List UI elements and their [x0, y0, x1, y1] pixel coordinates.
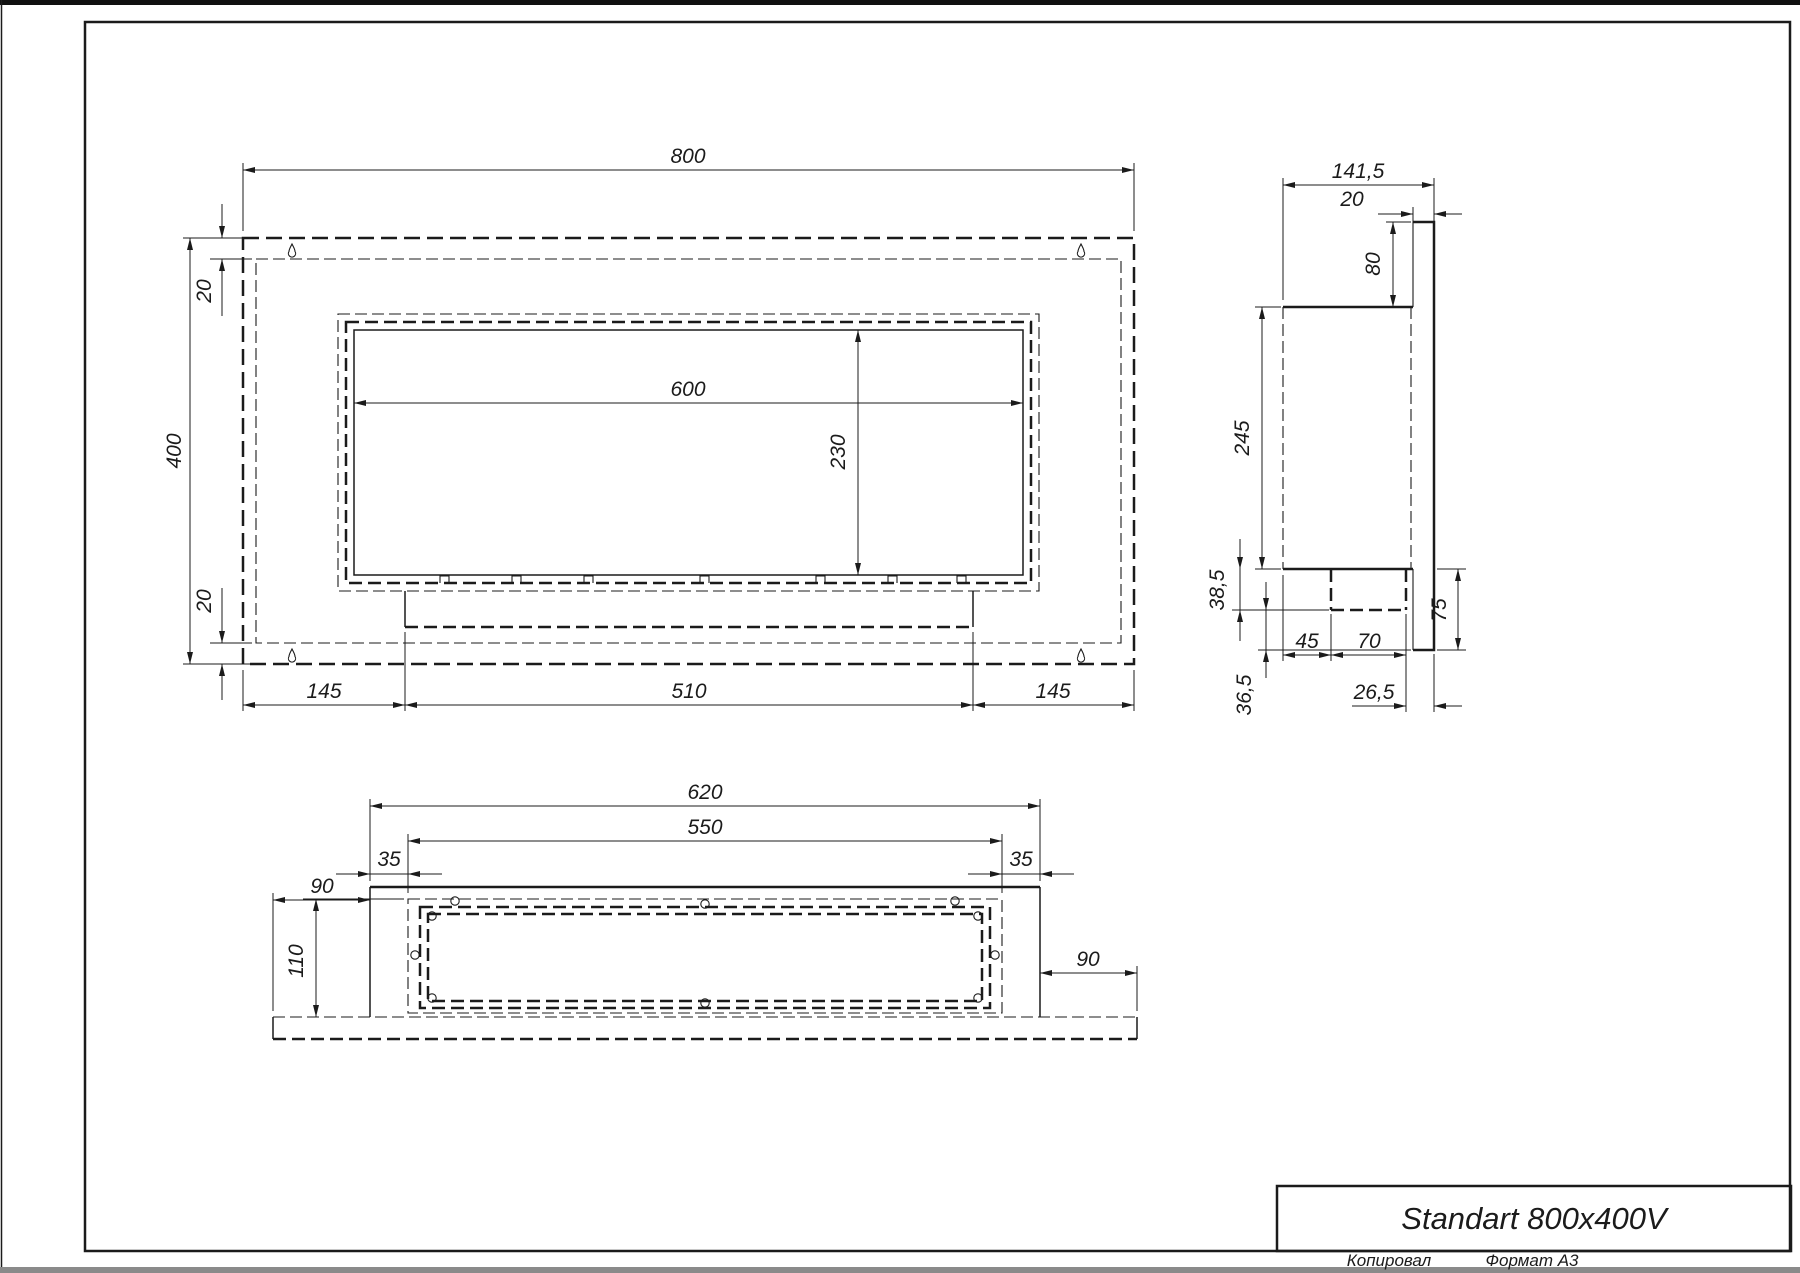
page-top-edge: [0, 0, 1800, 5]
bottom-opening-frame-mid: [420, 907, 990, 1008]
dim-side-body-height: 245: [1231, 420, 1254, 456]
keyhole-icon: [288, 649, 295, 662]
dim-front-bottom-inset: 20: [193, 589, 216, 614]
dim-bottom-depth: 110: [285, 944, 308, 978]
keyhole-icon: [288, 244, 295, 257]
drawing-title: Standart 800x400V: [1401, 1201, 1670, 1236]
dim-front-bottom-right: 145: [1035, 680, 1070, 703]
drawing-sheet: 800 400 20 20 600 230 145 510 145 141,5 …: [0, 0, 1800, 1273]
front-opening-frame-outer: [338, 314, 1039, 591]
bottom-opening-frame-inner: [428, 914, 982, 1001]
dim-front-opening-height: 230: [827, 434, 850, 470]
dim-bottom-body-width: 620: [687, 781, 722, 804]
keyhole-icon: [1077, 649, 1084, 662]
side-wall-plate: [1413, 222, 1434, 650]
front-view-dim-lines: 800 400 20 20 600 230 145 510 145: [163, 145, 1134, 711]
dim-side-bottom-gap: 36,5: [1233, 674, 1256, 715]
dim-front-opening-width: 600: [670, 378, 705, 401]
dim-side-tray-width: 70: [1357, 630, 1381, 653]
dim-side-tray-back-gap: 26,5: [1353, 681, 1395, 704]
keyhole-icon: [1077, 244, 1084, 257]
bottom-view: 620 550 35 35 90 90 110: [273, 781, 1137, 1039]
dim-bottom-margin-right: 35: [1009, 848, 1033, 871]
side-view-outline: [1283, 222, 1434, 650]
dim-side-tray-front-gap: 45: [1295, 630, 1319, 653]
side-arrowheads: [1237, 182, 1461, 709]
format-label: Формат А3: [1485, 1251, 1579, 1270]
title-block: Standart 800x400V Копировал Формат А3: [1277, 1186, 1791, 1270]
sheet-frame: [0, 0, 1800, 1273]
copied-label: Копировал: [1347, 1251, 1432, 1270]
bottom-view-outline: [273, 887, 1137, 1039]
dim-side-overall-depth: 141,5: [1332, 160, 1385, 183]
dim-front-bottom-left: 145: [306, 680, 341, 703]
dim-side-plate-thickness: 20: [1339, 188, 1364, 211]
front-view: 800 400 20 20 600 230 145 510 145: [163, 145, 1134, 711]
dim-front-bottom-center: 510: [671, 680, 706, 703]
front-tray-sides: [405, 591, 973, 627]
side-view-dim-lines: 141,5 20 80 245 38,5 36,5 45 70 26,5 75: [1206, 160, 1466, 715]
dim-side-top-offset: 80: [1362, 252, 1385, 276]
dim-bottom-flange-right: 90: [1076, 948, 1100, 971]
side-body-top-bottom: [1283, 307, 1413, 569]
front-inner-hidden-rect: [256, 259, 1121, 643]
dim-side-tray-height: 38,5: [1206, 569, 1229, 610]
front-view-outline: [243, 238, 1134, 664]
front-opening-frame-mid: [346, 322, 1031, 583]
dim-side-plate-bottom-drop: 75: [1428, 598, 1451, 622]
dim-front-overall-height: 400: [163, 433, 186, 468]
dim-bottom-flange-left: 90: [310, 875, 334, 898]
side-dimension-lines: [1232, 178, 1466, 712]
side-view: 141,5 20 80 245 38,5 36,5 45 70 26,5 75: [1206, 160, 1466, 715]
dim-bottom-opening-width: 550: [687, 816, 722, 839]
dim-front-overall-width: 800: [670, 145, 705, 168]
dim-front-top-inset: 20: [193, 279, 216, 304]
dim-bottom-margin-left: 35: [377, 848, 401, 871]
front-dimension-lines: [183, 163, 1134, 711]
drawing-border: [85, 22, 1790, 1251]
side-tray-hidden: [1331, 569, 1406, 610]
front-outer-panel: [243, 238, 1134, 664]
bottom-opening-frame-outer: [408, 899, 1002, 1013]
drawing-canvas: 800 400 20 20 600 230 145 510 145 141,5 …: [0, 0, 1800, 1273]
front-opening: [354, 330, 1023, 575]
side-body-hidden-edges: [1283, 307, 1411, 569]
bottom-flange-ends: [273, 1017, 1137, 1039]
